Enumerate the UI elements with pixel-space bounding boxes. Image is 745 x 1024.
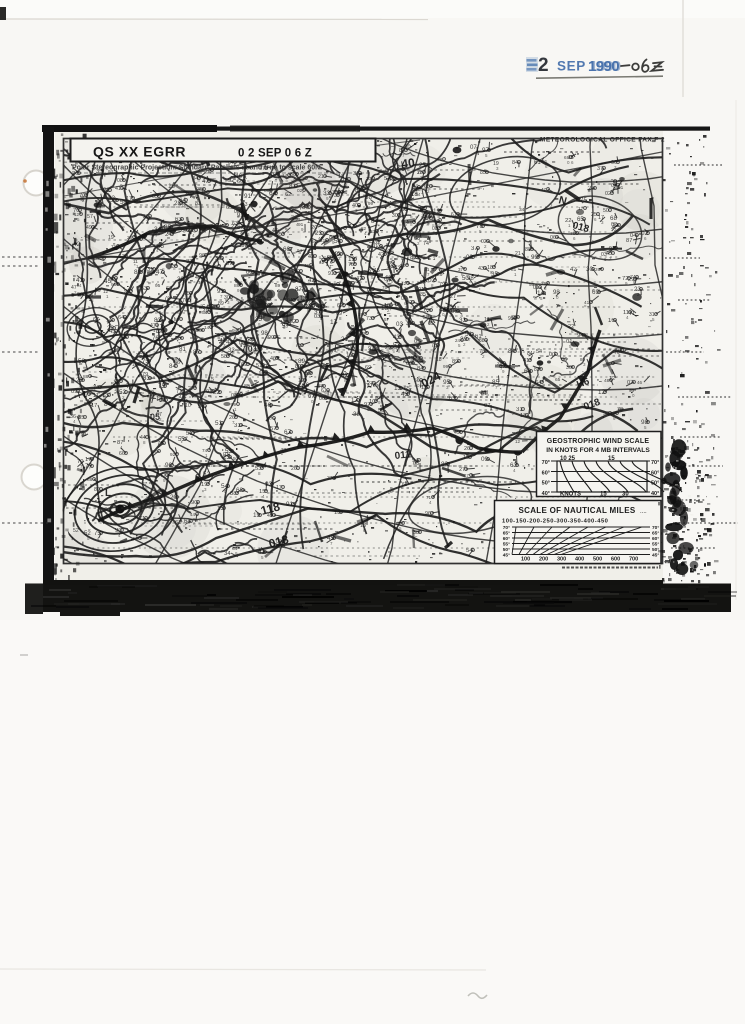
svg-text:74: 74 [423,241,429,247]
svg-text:IN KNOTS FOR 4 MB INTERVALS: IN KNOTS FOR 4 MB INTERVALS [546,447,650,454]
svg-text:90: 90 [134,199,140,205]
svg-text:68: 68 [402,482,408,488]
svg-text:55°: 55° [652,542,659,548]
svg-text:91: 91 [244,193,252,200]
svg-text:50: 50 [110,197,118,204]
svg-text:33: 33 [459,317,467,324]
svg-text:Polar Stereographic Projection: Polar Stereographic Projection. Standard… [72,165,320,172]
svg-text:40°: 40° [542,491,550,497]
svg-text:60°: 60° [503,536,510,542]
svg-text:SEP: SEP [557,59,586,74]
svg-text:45°: 45° [503,553,510,559]
svg-text:09: 09 [264,188,270,194]
svg-text:75: 75 [382,285,388,290]
svg-text:70°: 70° [651,460,659,466]
svg-text:92: 92 [170,452,176,457]
svg-text:21: 21 [515,251,521,257]
svg-text:57: 57 [338,226,344,231]
svg-text:15: 15 [600,491,607,497]
svg-text:L: L [105,488,111,499]
svg-text:2: 2 [538,55,549,76]
svg-text:19: 19 [253,512,261,519]
svg-text:300: 300 [557,557,566,563]
svg-text:70°: 70° [542,460,550,466]
svg-text:57: 57 [384,317,390,322]
svg-text:73: 73 [366,316,372,322]
svg-text:65°: 65° [503,531,510,537]
svg-text:64: 64 [118,315,124,321]
svg-text:011: 011 [394,449,412,462]
svg-text:QS XX EGRR: QS XX EGRR [93,144,186,160]
svg-text:0 2 SEP 0 6 Z: 0 2 SEP 0 6 Z [238,148,312,160]
svg-text:05: 05 [152,194,158,200]
svg-text:84: 84 [512,160,518,166]
svg-text:100: 100 [521,557,530,563]
svg-text:GEOSTROPHIC WIND SCALE: GEOSTROPHIC WIND SCALE [547,438,650,445]
svg-text:50: 50 [400,263,406,269]
svg-text:METEOROLOGICAL OFFICE FAX F 2: METEOROLOGICAL OFFICE FAX F 2 [540,137,665,144]
svg-text:07: 07 [484,403,490,409]
svg-text:91: 91 [286,501,294,508]
svg-text:40: 40 [264,402,272,409]
svg-text:64: 64 [181,228,187,234]
svg-text:20: 20 [437,272,443,278]
svg-text:500: 500 [593,557,602,563]
svg-text:60°: 60° [652,536,659,542]
svg-text:50°: 50° [542,481,550,487]
svg-text:85: 85 [480,170,486,176]
svg-text:09: 09 [481,456,489,463]
svg-text:100-150-200-250-300-350-400-45: 100-150-200-250-300-350-400-450 [502,519,608,525]
svg-text:30: 30 [586,266,593,273]
svg-text:14: 14 [204,325,210,330]
svg-text:55°: 55° [503,542,510,548]
svg-text:84: 84 [371,218,379,225]
svg-text:87: 87 [317,384,323,390]
svg-text:28: 28 [127,235,133,240]
svg-text:25: 25 [223,454,231,461]
svg-text:97: 97 [612,177,624,189]
svg-text:43: 43 [478,266,484,272]
svg-text:27: 27 [459,467,465,473]
svg-text:10: 10 [185,403,191,409]
svg-text:51: 51 [186,431,192,437]
svg-text:25: 25 [399,207,405,213]
svg-text:50°: 50° [503,547,510,553]
svg-text:75: 75 [184,291,190,297]
svg-text:KNOTS: KNOTS [560,491,581,497]
svg-text:37: 37 [109,276,115,282]
svg-text:07: 07 [470,144,477,151]
svg-text:83: 83 [441,461,449,468]
svg-text:600: 600 [611,557,620,563]
svg-text:05: 05 [150,412,160,422]
svg-text:68: 68 [236,487,244,494]
svg-text:26: 26 [291,466,297,472]
svg-text:79: 79 [439,282,445,288]
svg-text:59: 59 [95,288,101,294]
svg-text:03: 03 [374,243,381,250]
svg-text:71: 71 [111,244,117,250]
svg-text:60°: 60° [542,471,550,477]
svg-text:46: 46 [270,356,276,362]
svg-text:88: 88 [83,374,89,380]
svg-text:17: 17 [126,196,132,202]
svg-text:95: 95 [155,283,161,289]
svg-text:40: 40 [400,155,415,171]
svg-text:48: 48 [280,448,286,454]
svg-text:70°: 70° [652,525,659,531]
svg-text:76: 76 [182,298,188,304]
svg-text:1990: 1990 [590,58,621,75]
svg-text:80: 80 [94,487,100,493]
svg-text:67: 67 [267,416,273,422]
svg-text:70°: 70° [503,525,510,531]
svg-text:96: 96 [425,511,431,517]
svg-text:91: 91 [328,271,334,277]
svg-text:....: .... [640,509,647,515]
svg-text:65°: 65° [652,531,659,537]
svg-text:13: 13 [381,305,388,312]
svg-text:17: 17 [156,324,164,331]
svg-text:016: 016 [247,343,263,354]
svg-text:19: 19 [346,352,353,359]
svg-text:77: 77 [85,463,92,470]
svg-text:88: 88 [87,477,93,483]
svg-text:26: 26 [595,267,601,272]
svg-text:400: 400 [575,557,584,563]
svg-text:54: 54 [366,291,374,298]
svg-text:93: 93 [265,481,273,488]
svg-text:50: 50 [212,264,218,269]
svg-text:700: 700 [629,557,638,563]
svg-text:45°: 45° [652,553,659,559]
svg-text:54: 54 [176,301,182,307]
svg-text:30: 30 [622,491,629,497]
svg-text:SCALE OF NAUTICAL MILES: SCALE OF NAUTICAL MILES [519,506,636,515]
svg-text:40°: 40° [651,491,659,497]
svg-text:49: 49 [304,263,310,268]
svg-text:50: 50 [462,275,469,282]
svg-text:200: 200 [539,557,548,563]
svg-text:37: 37 [327,476,333,482]
